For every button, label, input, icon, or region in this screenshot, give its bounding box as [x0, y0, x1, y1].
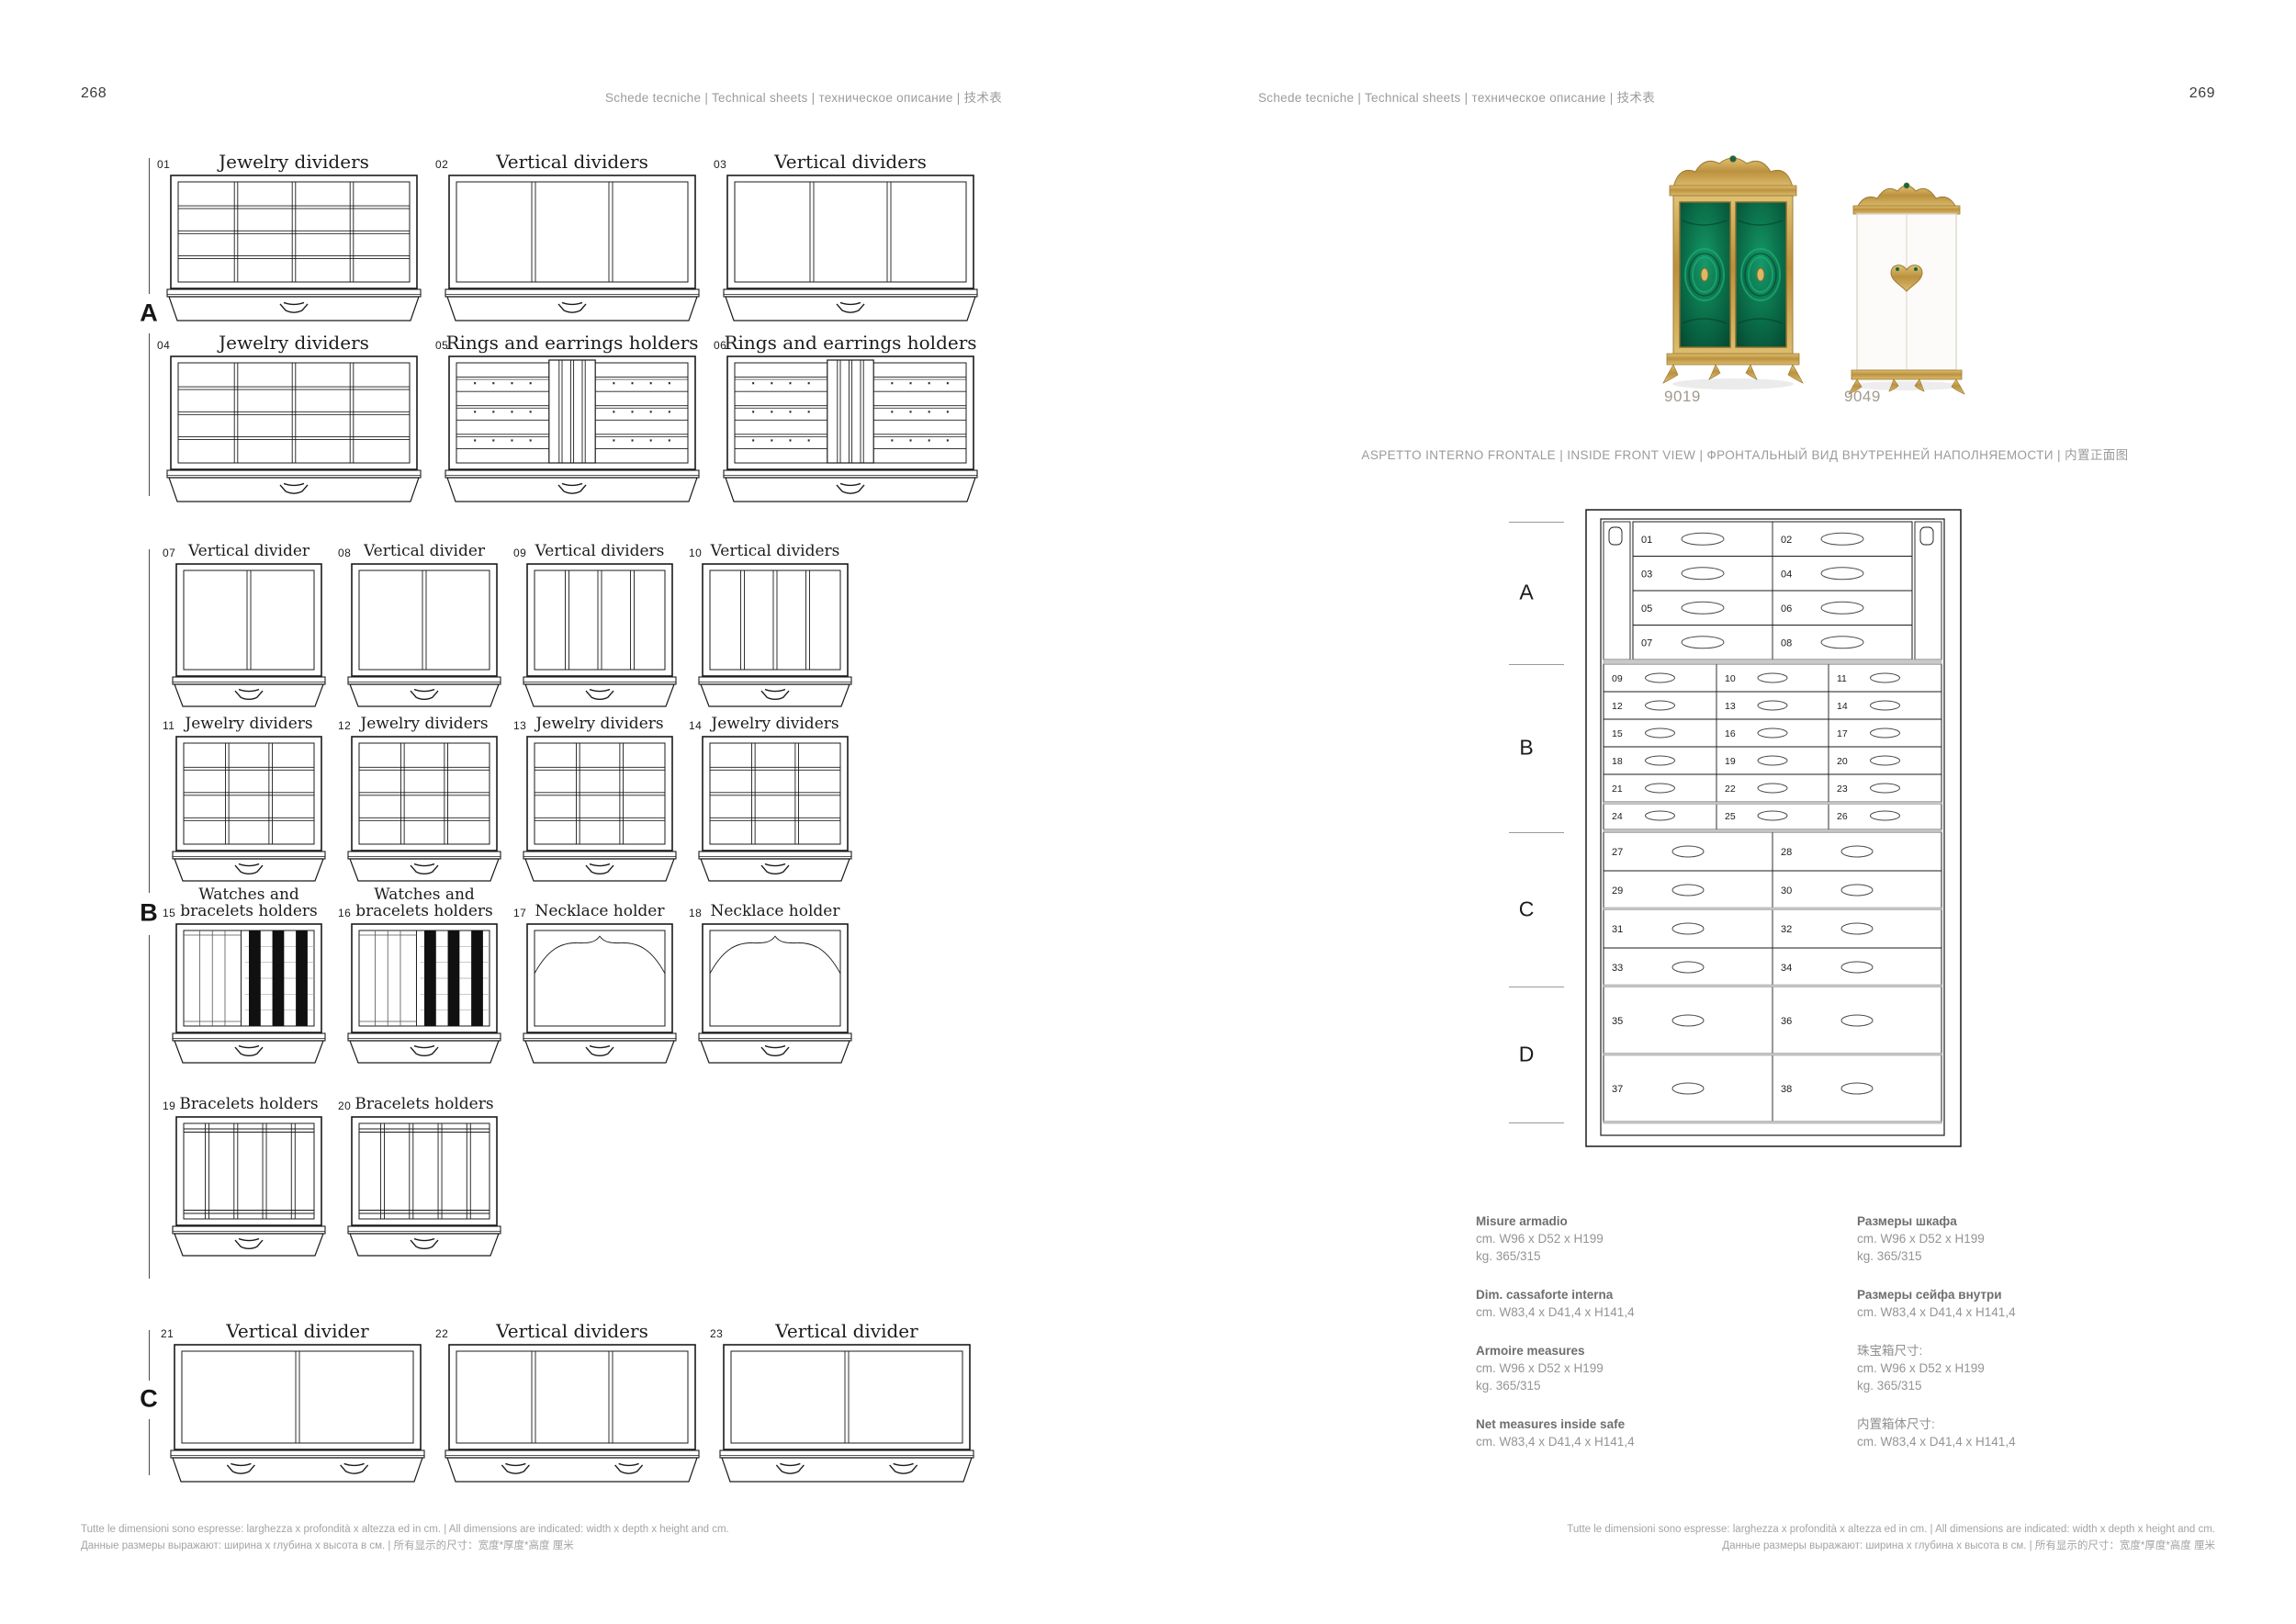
svg-text:08: 08 — [1781, 637, 1792, 648]
tray-title: Watches andbracelets holders15 — [161, 887, 337, 920]
armoire-white-image — [1837, 175, 1976, 395]
bracket-line-C — [149, 1330, 150, 1381]
svg-text:16: 16 — [1725, 728, 1736, 739]
bracket-line-B — [149, 549, 150, 893]
tray-number: 09 — [513, 547, 526, 559]
tray-number: 17 — [513, 908, 526, 919]
tray-number: 12 — [338, 720, 351, 732]
tray-svg — [345, 736, 503, 884]
tray-number: 19 — [163, 1100, 175, 1112]
measure-line: cm. W96 x D52 x H199 — [1857, 1359, 2169, 1377]
tray-drawing-08: Vertical divider08 — [345, 563, 503, 714]
tray-svg — [717, 1344, 976, 1484]
tray-title: Jewelry dividers12 — [336, 716, 512, 733]
svg-text:18: 18 — [1612, 756, 1623, 767]
tray-title: Jewelry dividers01 — [155, 152, 433, 172]
svg-text:14: 14 — [1837, 701, 1848, 712]
measure-line: cm. W96 x D52 x H199 — [1476, 1230, 1788, 1247]
tray-number: 04 — [157, 340, 170, 352]
tray-title: Necklace holder18 — [687, 904, 863, 920]
measure-group: Armoire measurescm. W96 x D52 x H199kg. … — [1476, 1342, 1788, 1394]
footer-left: Tutte le dimensioni sono espresse: largh… — [81, 1521, 729, 1554]
tray-drawing-22: Vertical dividers22 — [443, 1344, 702, 1489]
tray-title: Vertical divider21 — [159, 1322, 436, 1341]
tray-number: 05 — [435, 340, 448, 352]
tray-title: Vertical dividers10 — [687, 544, 863, 560]
tray-svg — [170, 736, 328, 884]
measure-line: cm. W96 x D52 x H199 — [1857, 1230, 2169, 1247]
tray-number: 20 — [338, 1100, 351, 1112]
measure-line: cm. W83,4 x D41,4 x H141,4 — [1476, 1433, 1788, 1450]
svg-text:31: 31 — [1612, 924, 1623, 935]
measure-line: kg. 365/315 — [1476, 1247, 1788, 1265]
tray-title: Jewelry dividers11 — [161, 716, 337, 733]
tray-drawing-19: Bracelets holders19 — [170, 1116, 328, 1263]
schematic-section-B: B — [1519, 736, 1533, 761]
tray-number: 23 — [710, 1328, 723, 1340]
bracket-line-A — [149, 158, 150, 294]
measure-group: Misure armadiocm. W96 x D52 x H199kg. 36… — [1476, 1212, 1788, 1265]
tray-drawing-18: Necklace holder18 — [696, 923, 854, 1070]
tray-title: Vertical divider08 — [336, 544, 512, 560]
tray-number: 22 — [435, 1328, 448, 1340]
tray-title: Bracelets holders20 — [336, 1097, 512, 1113]
schematic-tick — [1509, 522, 1564, 523]
tray-svg — [443, 1344, 702, 1484]
tray-title: Jewelry dividers13 — [512, 716, 688, 733]
measure-title: Misure armadio — [1476, 1212, 1788, 1230]
tray-title: Vertical divider07 — [161, 544, 337, 560]
tray-title: Necklace holder17 — [512, 904, 688, 920]
tray-number: 18 — [689, 908, 702, 919]
measure-title: 珠宝箱尺寸: — [1857, 1342, 2169, 1359]
tray-svg — [721, 175, 980, 323]
svg-text:15: 15 — [1612, 728, 1623, 739]
tray-svg — [443, 175, 702, 323]
tray-drawing-06: Rings and earrings holders06 — [721, 355, 980, 509]
tray-svg — [443, 355, 702, 504]
tray-title: Watches andbracelets holders16 — [336, 887, 512, 920]
svg-text:25: 25 — [1725, 811, 1736, 822]
product-code-9049: 9049 — [1844, 388, 1881, 406]
tray-title: Vertical dividers02 — [433, 152, 711, 172]
tray-drawing-02: Vertical dividers02 — [443, 175, 702, 328]
group-label-B: B — [140, 899, 158, 928]
tray-drawing-23: Vertical divider23 — [717, 1344, 976, 1489]
measure-group: 内置箱体尺寸:cm. W83,4 x D41,4 x H141,4 — [1857, 1415, 2169, 1450]
armoire-malachite-image — [1651, 149, 1815, 395]
svg-text:21: 21 — [1612, 784, 1623, 795]
svg-text:32: 32 — [1781, 924, 1792, 935]
svg-text:27: 27 — [1612, 847, 1623, 858]
measure-line: kg. 365/315 — [1476, 1377, 1788, 1394]
svg-text:03: 03 — [1641, 569, 1652, 580]
tray-title: Jewelry dividers04 — [155, 333, 433, 353]
measure-line: kg. 365/315 — [1857, 1377, 2169, 1394]
tray-number: 21 — [161, 1328, 174, 1340]
svg-text:30: 30 — [1781, 885, 1792, 897]
tray-svg — [721, 355, 980, 504]
page-number-right: 269 — [2189, 85, 2215, 102]
tray-title: Jewelry dividers14 — [687, 716, 863, 733]
svg-text:24: 24 — [1612, 811, 1623, 822]
svg-text:29: 29 — [1612, 885, 1623, 897]
svg-text:11: 11 — [1837, 673, 1847, 684]
tray-svg — [521, 563, 679, 709]
product-photo-9049 — [1837, 175, 1976, 395]
inside-front-view-heading: ASPETTO INTERNO FRONTALE | INSIDE FRONT … — [1361, 445, 2128, 463]
schematic-section-C: C — [1519, 897, 1535, 922]
measure-line: cm. W96 x D52 x H199 — [1476, 1359, 1788, 1377]
tray-drawing-10: Vertical dividers10 — [696, 563, 854, 714]
measure-title: Размеры сейфа внутри — [1857, 1286, 2169, 1303]
tray-drawing-04: Jewelry dividers04 — [164, 355, 423, 509]
svg-text:35: 35 — [1612, 1016, 1623, 1027]
tray-number: 07 — [163, 547, 175, 559]
tray-svg — [696, 923, 854, 1066]
tray-svg — [696, 736, 854, 884]
svg-text:19: 19 — [1725, 756, 1736, 767]
tray-drawing-03: Vertical dividers03 — [721, 175, 980, 328]
tray-drawing-05: Rings and earrings holders05 — [443, 355, 702, 509]
svg-text:06: 06 — [1781, 603, 1792, 615]
tray-drawing-01: Jewelry dividers01 — [164, 175, 423, 328]
tray-title: Vertical dividers03 — [712, 152, 989, 172]
catalog-spread: 268 Schede tecniche | Technical sheets |… — [0, 0, 2296, 1624]
tray-svg — [170, 923, 328, 1066]
footer-left-line2: Данные размеры выражают: ширина х глубин… — [81, 1538, 729, 1554]
tray-svg — [168, 1344, 427, 1484]
measure-group: Net measures inside safecm. W83,4 x D41,… — [1476, 1415, 1788, 1450]
svg-text:28: 28 — [1781, 847, 1792, 858]
tray-number: 01 — [157, 159, 170, 171]
svg-text:07: 07 — [1641, 637, 1652, 648]
page-number-left: 268 — [81, 85, 107, 102]
svg-text:33: 33 — [1612, 963, 1623, 974]
bracket-line-C — [149, 1419, 150, 1475]
tray-title: Vertical dividers22 — [433, 1322, 711, 1341]
tray-title: Bracelets holders19 — [161, 1097, 337, 1113]
tray-svg — [164, 175, 423, 323]
measure-group: Dim. cassaforte internacm. W83,4 x D41,4… — [1476, 1286, 1788, 1321]
measure-group: Размеры шкафаcm. W96 x D52 x H199kg. 365… — [1857, 1212, 2169, 1265]
measure-title: Net measures inside safe — [1476, 1415, 1788, 1433]
svg-text:01: 01 — [1641, 535, 1652, 546]
tray-number: 02 — [435, 159, 448, 171]
header-left: Schede tecniche | Technical sheets | тех… — [605, 87, 1002, 106]
measure-group: 珠宝箱尺寸:cm. W96 x D52 x H199kg. 365/315 — [1857, 1342, 2169, 1394]
tray-drawing-17: Necklace holder17 — [521, 923, 679, 1070]
tray-svg — [345, 923, 503, 1066]
svg-text:38: 38 — [1781, 1084, 1792, 1095]
measure-title: Armoire measures — [1476, 1342, 1788, 1359]
schematic-tick — [1509, 1122, 1564, 1123]
measures-column-right: Размеры шкафаcm. W96 x D52 x H199kg. 365… — [1857, 1212, 2169, 1472]
svg-text:17: 17 — [1837, 728, 1848, 739]
schematic-tick — [1509, 664, 1564, 665]
tray-drawing-12: Jewelry dividers12 — [345, 736, 503, 888]
tray-svg — [170, 1116, 328, 1258]
measures-column-left: Misure armadiocm. W96 x D52 x H199kg. 36… — [1476, 1212, 1788, 1472]
tray-title: Vertical dividers09 — [512, 544, 688, 560]
svg-text:02: 02 — [1781, 535, 1792, 546]
tray-drawing-16: Watches andbracelets holders16 — [345, 923, 503, 1070]
tray-title: Rings and earrings holders05 — [433, 333, 711, 353]
tray-number: 10 — [689, 547, 702, 559]
tray-number: 16 — [338, 908, 351, 919]
svg-text:20: 20 — [1837, 756, 1848, 767]
schematic-tick — [1509, 832, 1564, 833]
tray-svg — [521, 736, 679, 884]
measure-title: 内置箱体尺寸: — [1857, 1415, 2169, 1433]
tray-drawing-14: Jewelry dividers14 — [696, 736, 854, 888]
tray-drawing-09: Vertical dividers09 — [521, 563, 679, 714]
tray-svg — [345, 1116, 503, 1258]
footer-right-line1: Tutte le dimensioni sono espresse: largh… — [1567, 1521, 2215, 1538]
tray-title: Vertical divider23 — [708, 1322, 985, 1341]
tray-number: 13 — [513, 720, 526, 732]
tray-drawing-15: Watches andbracelets holders15 — [170, 923, 328, 1070]
footer-right: Tutte le dimensioni sono espresse: largh… — [1567, 1521, 2215, 1554]
measure-title: Dim. cassaforte interna — [1476, 1286, 1788, 1303]
group-label-A: A — [140, 299, 158, 328]
svg-text:05: 05 — [1641, 603, 1652, 615]
svg-text:37: 37 — [1612, 1084, 1623, 1095]
svg-text:13: 13 — [1725, 701, 1736, 712]
svg-text:34: 34 — [1781, 963, 1792, 974]
tray-svg — [170, 563, 328, 709]
tray-drawing-11: Jewelry dividers11 — [170, 736, 328, 888]
product-code-9019: 9019 — [1664, 388, 1701, 406]
measure-line: cm. W83,4 x D41,4 x H141,4 — [1857, 1303, 2169, 1321]
svg-text:10: 10 — [1725, 673, 1736, 684]
tray-title: Rings and earrings holders06 — [712, 333, 989, 353]
header-right: Schede tecniche | Technical sheets | тех… — [1258, 87, 1655, 106]
footer-right-line2: Данные размеры выражают: ширина х глубин… — [1567, 1538, 2215, 1554]
tray-number: 15 — [163, 908, 175, 919]
tray-number: 03 — [714, 159, 726, 171]
schematic-section-D: D — [1519, 1043, 1535, 1067]
schematic-section-A: A — [1519, 581, 1533, 605]
svg-text:26: 26 — [1837, 811, 1848, 822]
measure-line: cm. W83,4 x D41,4 x H141,4 — [1857, 1433, 2169, 1450]
tray-drawing-13: Jewelry dividers13 — [521, 736, 679, 888]
product-photo-9019 — [1651, 149, 1815, 395]
tray-number: 14 — [689, 720, 702, 732]
inside-front-view-schematic: 0102030405060708091011121314151617181920… — [1585, 509, 1962, 1153]
bracket-line-B — [149, 935, 150, 1279]
tray-drawing-20: Bracelets holders20 — [345, 1116, 503, 1263]
tray-svg — [345, 563, 503, 709]
svg-text:22: 22 — [1725, 784, 1736, 795]
measure-title: Размеры шкафа — [1857, 1212, 2169, 1230]
schematic-svg: 0102030405060708091011121314151617181920… — [1585, 509, 1962, 1148]
tray-number: 06 — [714, 340, 726, 352]
svg-text:23: 23 — [1837, 784, 1848, 795]
tray-drawing-21: Vertical divider21 — [168, 1344, 427, 1489]
tray-svg — [521, 923, 679, 1066]
tray-number: 11 — [163, 720, 174, 732]
tray-svg — [164, 355, 423, 504]
schematic-tick — [1509, 987, 1564, 987]
svg-text:04: 04 — [1781, 569, 1792, 580]
measure-line: cm. W83,4 x D41,4 x H141,4 — [1476, 1303, 1788, 1321]
tray-svg — [696, 563, 854, 709]
tray-drawing-07: Vertical divider07 — [170, 563, 328, 714]
bracket-line-A — [149, 333, 150, 496]
svg-text:12: 12 — [1612, 701, 1623, 712]
svg-text:36: 36 — [1781, 1016, 1792, 1027]
footer-left-line1: Tutte le dimensioni sono espresse: largh… — [81, 1521, 729, 1538]
measure-group: Размеры сейфа внутриcm. W83,4 x D41,4 x … — [1857, 1286, 2169, 1321]
tray-number: 08 — [338, 547, 351, 559]
group-label-C: C — [140, 1385, 158, 1414]
svg-text:09: 09 — [1612, 673, 1623, 684]
measure-line: kg. 365/315 — [1857, 1247, 2169, 1265]
